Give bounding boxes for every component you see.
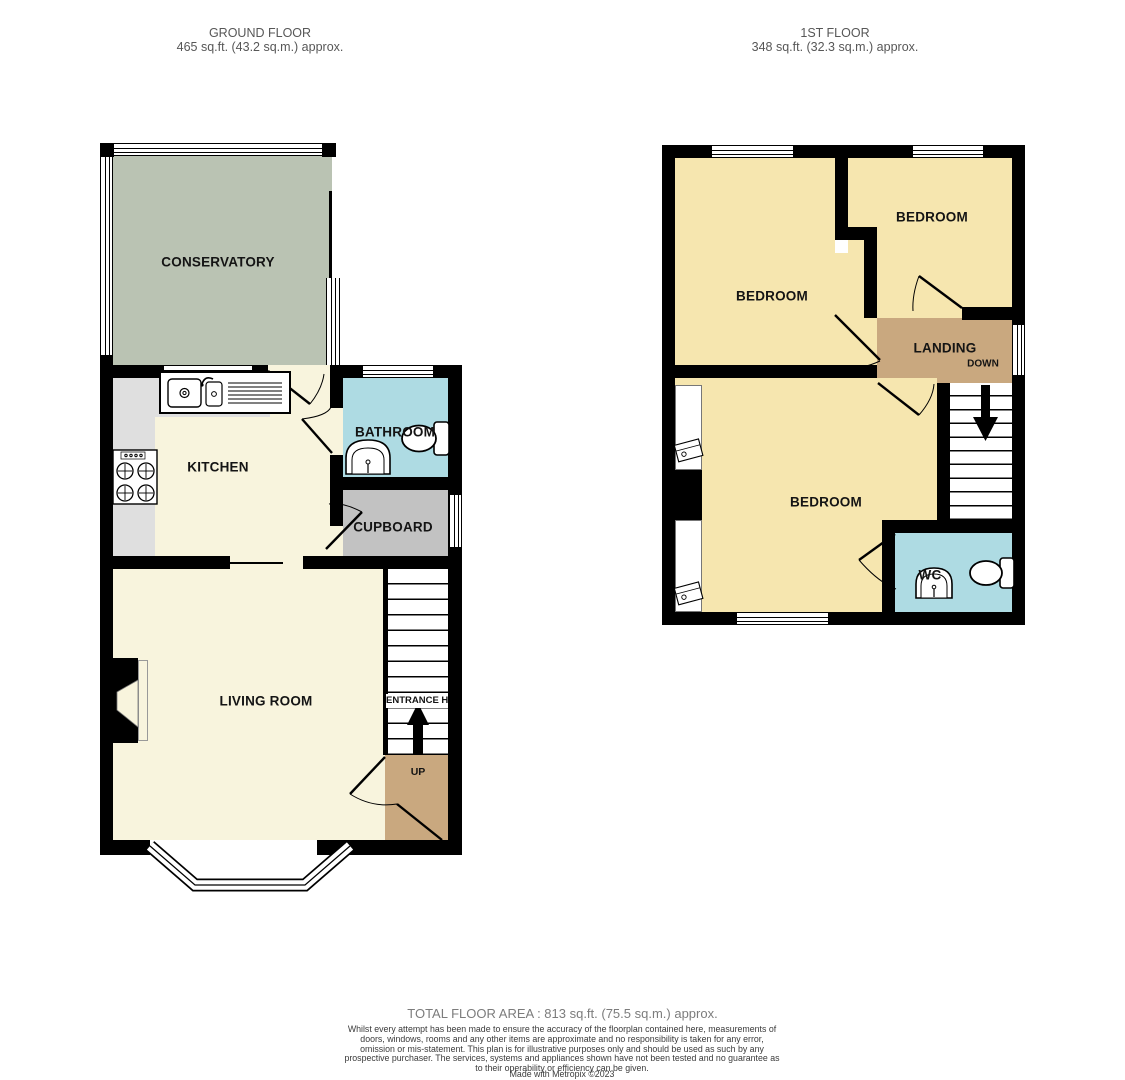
total-floor-area: TOTAL FLOOR AREA : 813 sq.ft. (75.5 sq.m… — [0, 1006, 1125, 1021]
bay-window-icon — [150, 846, 350, 885]
label-bedroom-top-left: BEDROOM — [736, 289, 808, 304]
label-conservatory: CONSERVATORY — [161, 255, 274, 270]
metropix-credit: Made with Metropix ©2023 — [342, 1070, 782, 1080]
down-arrow-icon — [973, 385, 998, 441]
first-floor-title: 1ST FLOOR — [685, 27, 985, 41]
ground-floor-overlay — [100, 143, 462, 893]
label-living-room: LIVING ROOM — [220, 694, 313, 709]
first-floor-plan: BEDROOM BEDROOM BEDROOM LANDING DOWN WC — [662, 145, 1025, 625]
label-up: UP — [411, 766, 426, 778]
hob-icon — [113, 450, 157, 504]
door-swing-entrance — [350, 757, 442, 840]
toilet-icon — [970, 558, 1014, 588]
up-arrow-icon — [407, 703, 429, 755]
first-floor-area: 348 sq.ft. (32.3 sq.m.) approx. — [685, 41, 985, 55]
ground-floor-plan: CONSERVATORY KITCHEN BATHROOM CUPBOARD L… — [100, 143, 462, 893]
label-bedroom-top-right: BEDROOM — [896, 210, 968, 225]
label-cupboard: CUPBOARD — [353, 520, 433, 535]
fireplace-opening — [117, 680, 138, 727]
label-down: DOWN — [967, 359, 999, 370]
label-entrance-hall: ENTRANCE HALL — [386, 694, 448, 708]
first-floor-overlay — [662, 145, 1025, 625]
door-swing-bedroom-top-left — [835, 315, 880, 369]
label-bathroom: BATHROOM — [355, 425, 435, 440]
door-swing-bedroom-top-right — [913, 276, 962, 311]
label-wc: WC — [919, 568, 942, 583]
label-kitchen: KITCHEN — [187, 460, 248, 475]
door-swing-bathroom — [302, 407, 332, 453]
label-landing: LANDING — [914, 341, 977, 356]
first-floor-header: 1ST FLOOR 348 sq.ft. (32.3 sq.m.) approx… — [685, 27, 985, 54]
sink-icon — [160, 372, 290, 413]
door-swing-bedroom-bottom — [878, 383, 934, 415]
ground-floor-title: GROUND FLOOR — [110, 27, 410, 41]
cabinet-icon — [674, 439, 703, 462]
disclaimer-text: Whilst every attempt has been made to en… — [342, 1025, 782, 1074]
ground-floor-area: 465 sq.ft. (43.2 sq.m.) approx. — [110, 41, 410, 55]
cabinet-icon — [674, 582, 703, 605]
label-bedroom-bottom: BEDROOM — [790, 495, 862, 510]
ground-floor-header: GROUND FLOOR 465 sq.ft. (43.2 sq.m.) app… — [110, 27, 410, 54]
floorplan-page: GROUND FLOOR 465 sq.ft. (43.2 sq.m.) app… — [0, 0, 1125, 1080]
door-swing-wc — [859, 534, 896, 589]
basin-icon — [346, 440, 390, 474]
